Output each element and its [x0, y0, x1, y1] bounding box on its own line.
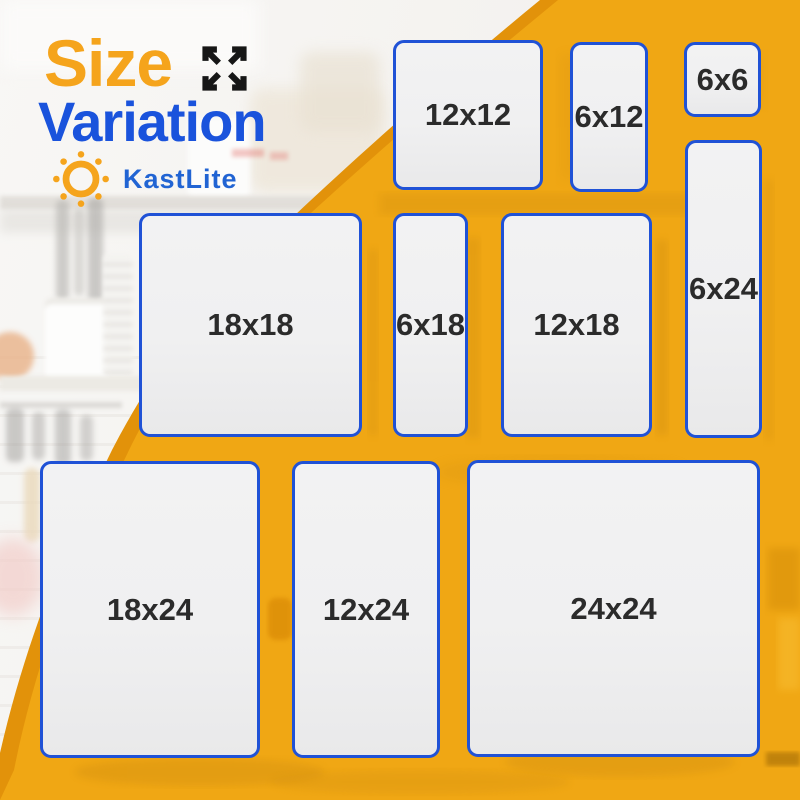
size-box-6x6: 6x6	[684, 42, 761, 117]
size-label: 12x12	[425, 97, 511, 133]
size-box-6x24: 6x24	[685, 140, 762, 438]
size-box-24x24: 24x24	[467, 460, 760, 757]
expand-arrows-icon	[196, 40, 253, 97]
size-label: 6x18	[396, 307, 465, 343]
size-label: 18x18	[207, 307, 293, 343]
size-box-12x18: 12x18	[501, 213, 652, 437]
page-title-variation: Variation	[38, 94, 266, 150]
size-variation-infographic: Size Variation KastLite 12x12 6x12 6x	[0, 0, 800, 800]
size-label: 12x18	[533, 307, 619, 343]
page-title-size: Size	[44, 30, 172, 96]
size-label: 6x12	[575, 99, 644, 135]
size-label: 18x24	[107, 592, 193, 628]
size-box-18x24: 18x24	[40, 461, 260, 758]
size-box-12x12: 12x12	[393, 40, 543, 190]
size-label: 24x24	[570, 591, 656, 627]
brand-logo: KastLite	[52, 150, 238, 208]
sun-icon	[52, 150, 110, 208]
size-box-6x18: 6x18	[393, 213, 468, 437]
size-box-18x18: 18x18	[139, 213, 362, 437]
size-box-6x12: 6x12	[570, 42, 648, 192]
size-label: 6x24	[689, 271, 758, 307]
brand-name: KastLite	[123, 164, 238, 195]
size-label: 12x24	[323, 592, 409, 628]
size-box-12x24: 12x24	[292, 461, 440, 758]
size-label: 6x6	[697, 62, 749, 98]
